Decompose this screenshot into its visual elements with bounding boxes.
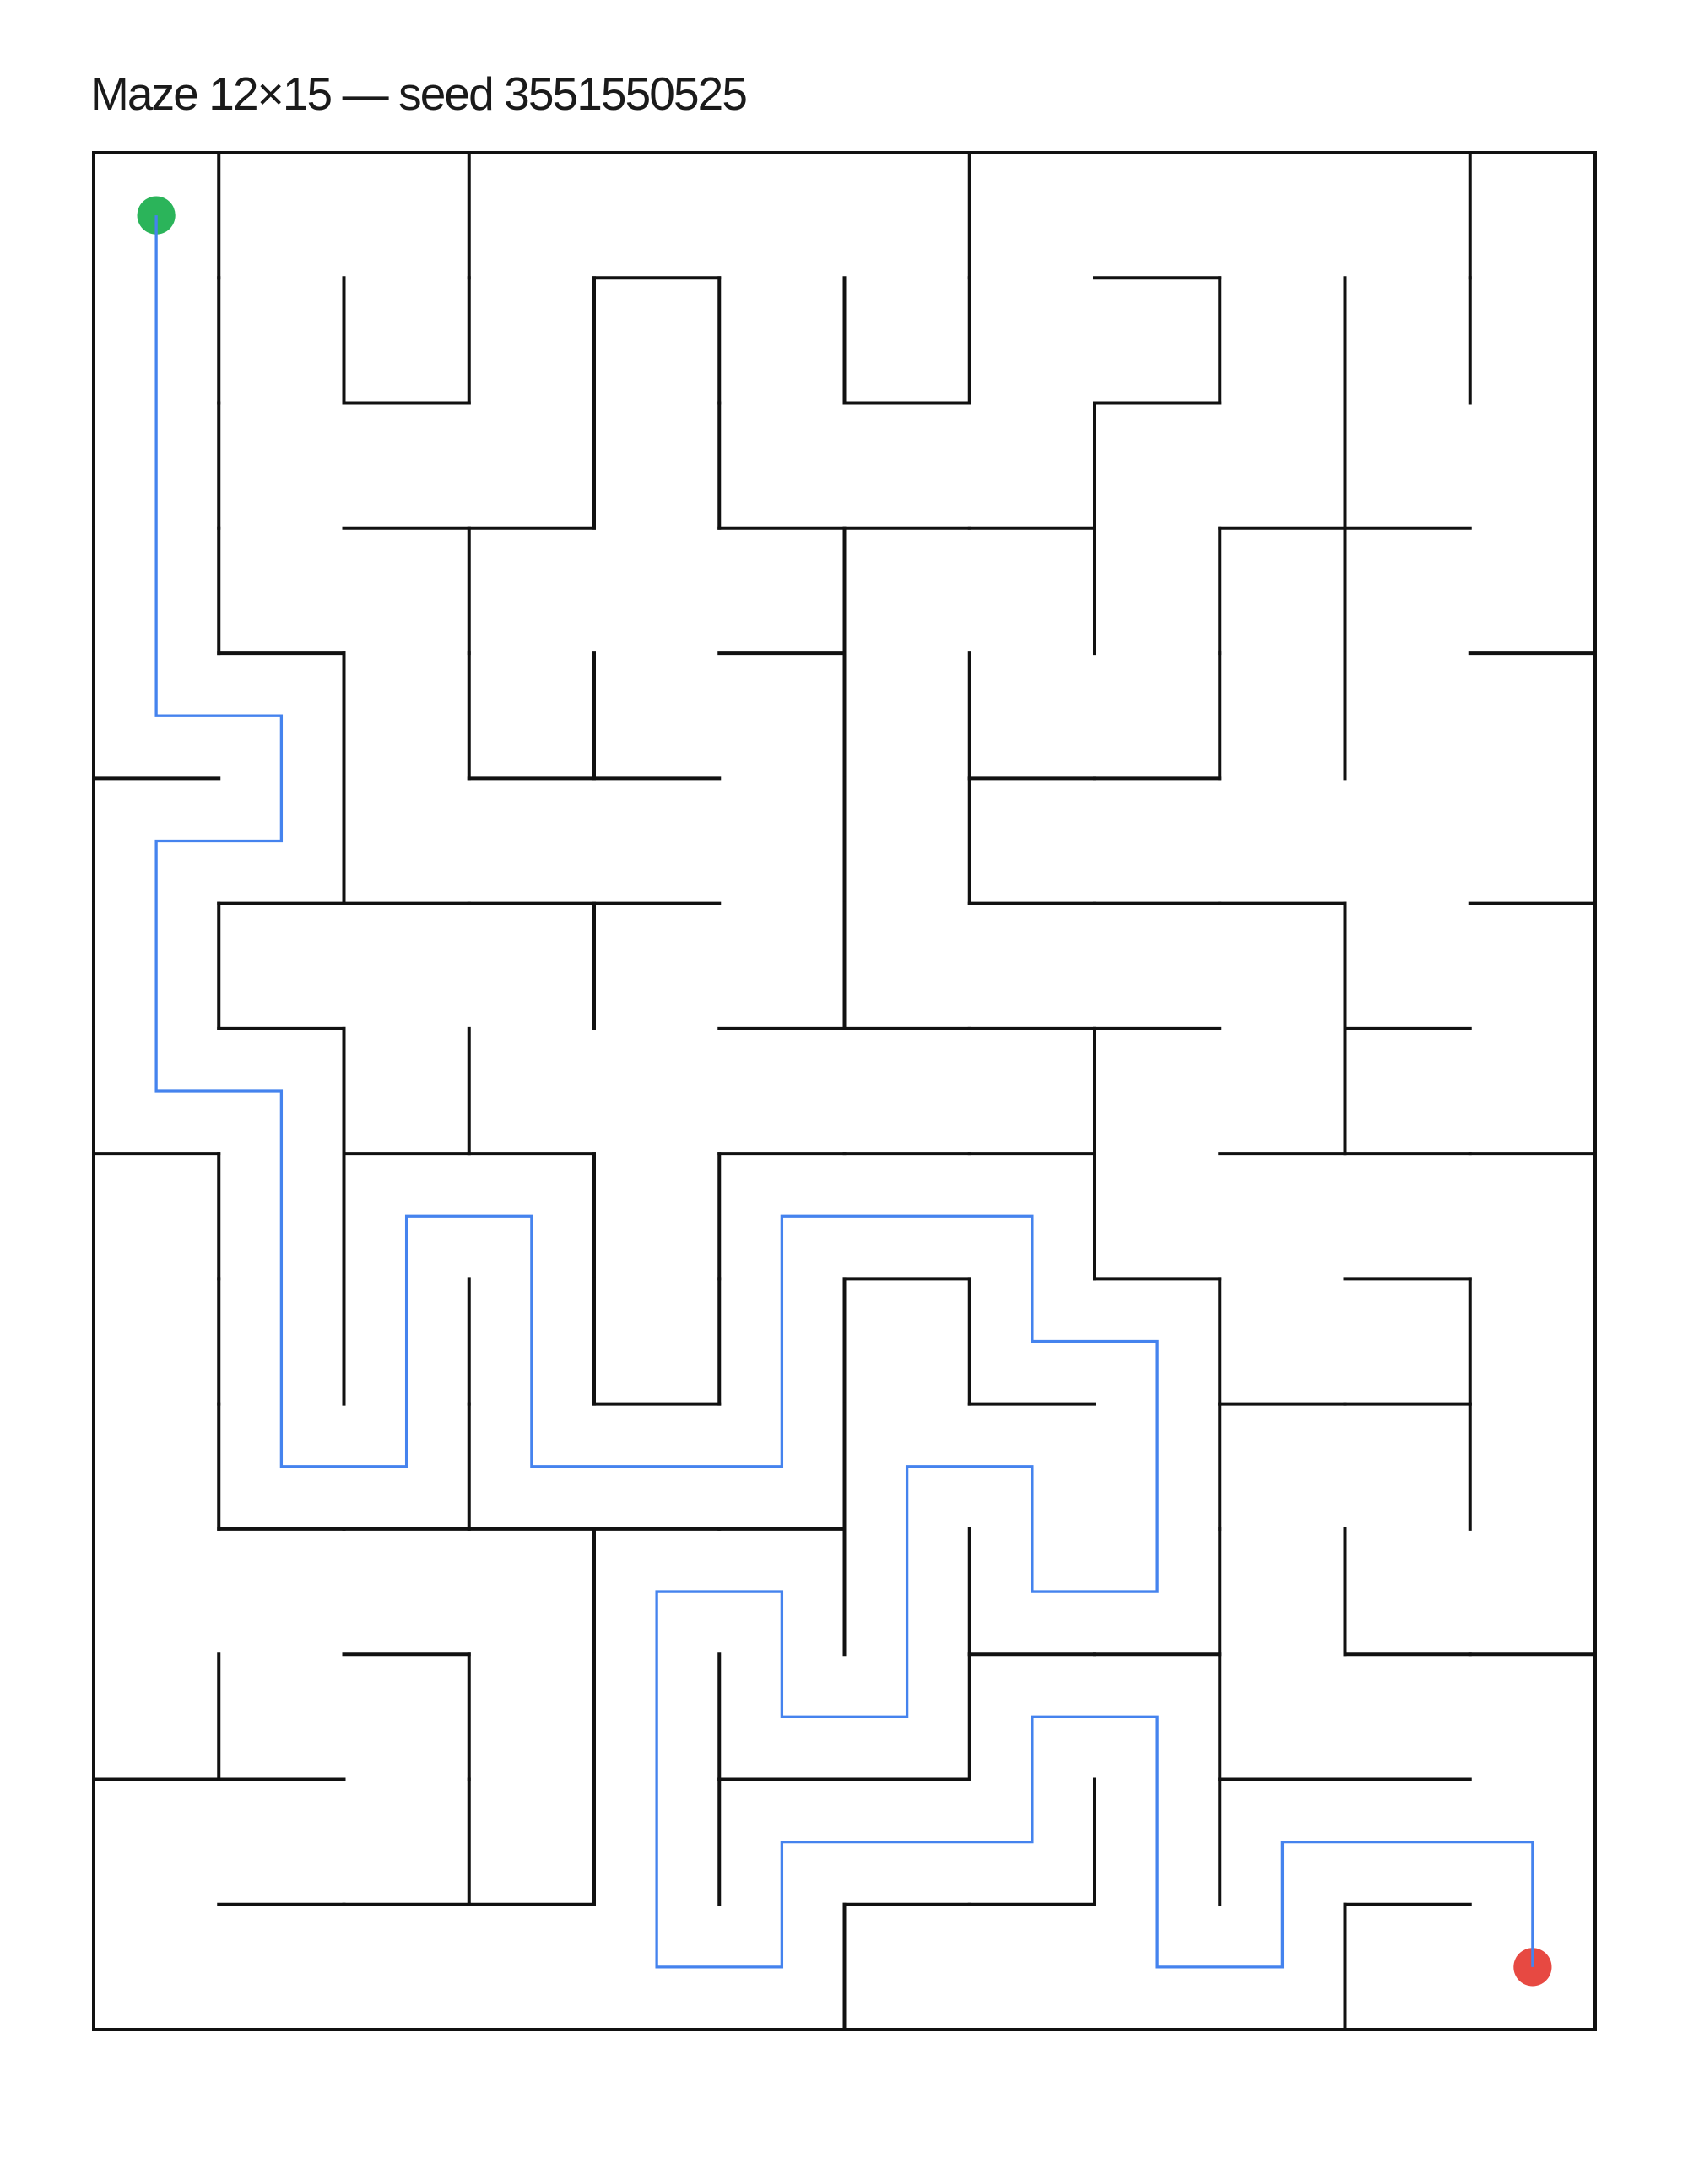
svg-text:Maze 12×15 — seed 3551550525: Maze 12×15 — seed 3551550525 (90, 68, 746, 120)
